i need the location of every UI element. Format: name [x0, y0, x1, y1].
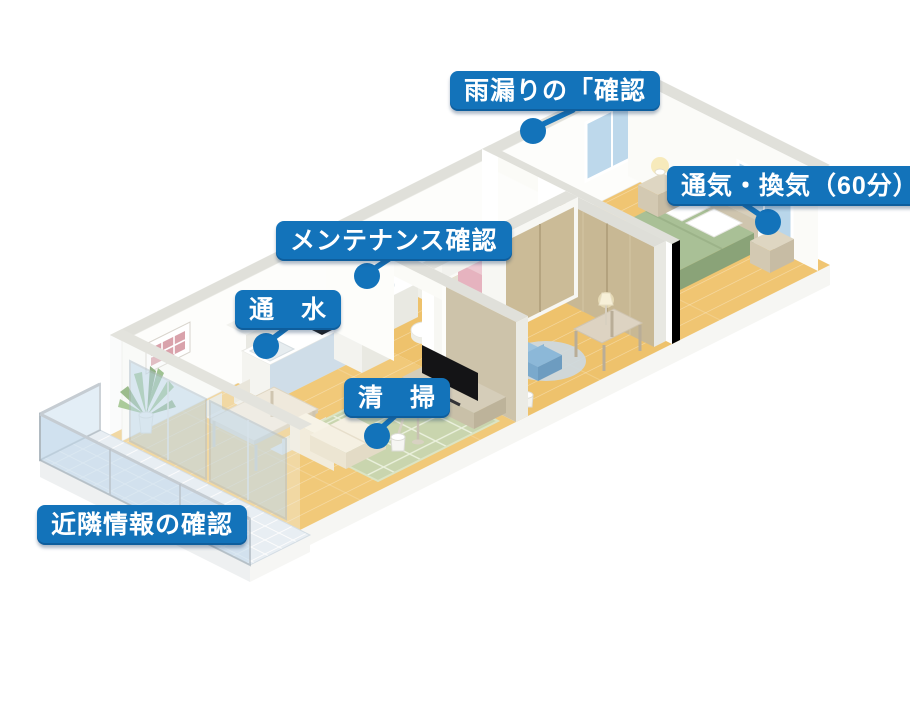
dot-water-flow — [253, 333, 279, 359]
dot-rain-leak — [520, 118, 546, 144]
callout-water-flow: 通 水 — [235, 290, 341, 330]
callout-ventilation: 通気・換気（60分） — [667, 166, 910, 206]
dot-cleaning — [364, 423, 390, 449]
callout-maintenance-check: メンテナンス確認 — [276, 221, 512, 261]
callout-rain-leak-check: 雨漏りの「確認 — [450, 71, 660, 111]
floorplan-diagram: 雨漏りの「確認 通気・換気（60分） メンテナンス確認 通 水 清 掃 近隣情報… — [0, 0, 910, 720]
dot-maintenance — [354, 263, 380, 289]
callout-neighborhood-check: 近隣情報の確認 — [37, 505, 247, 545]
callout-cleaning: 清 掃 — [344, 378, 450, 418]
dot-ventilation — [755, 209, 781, 235]
